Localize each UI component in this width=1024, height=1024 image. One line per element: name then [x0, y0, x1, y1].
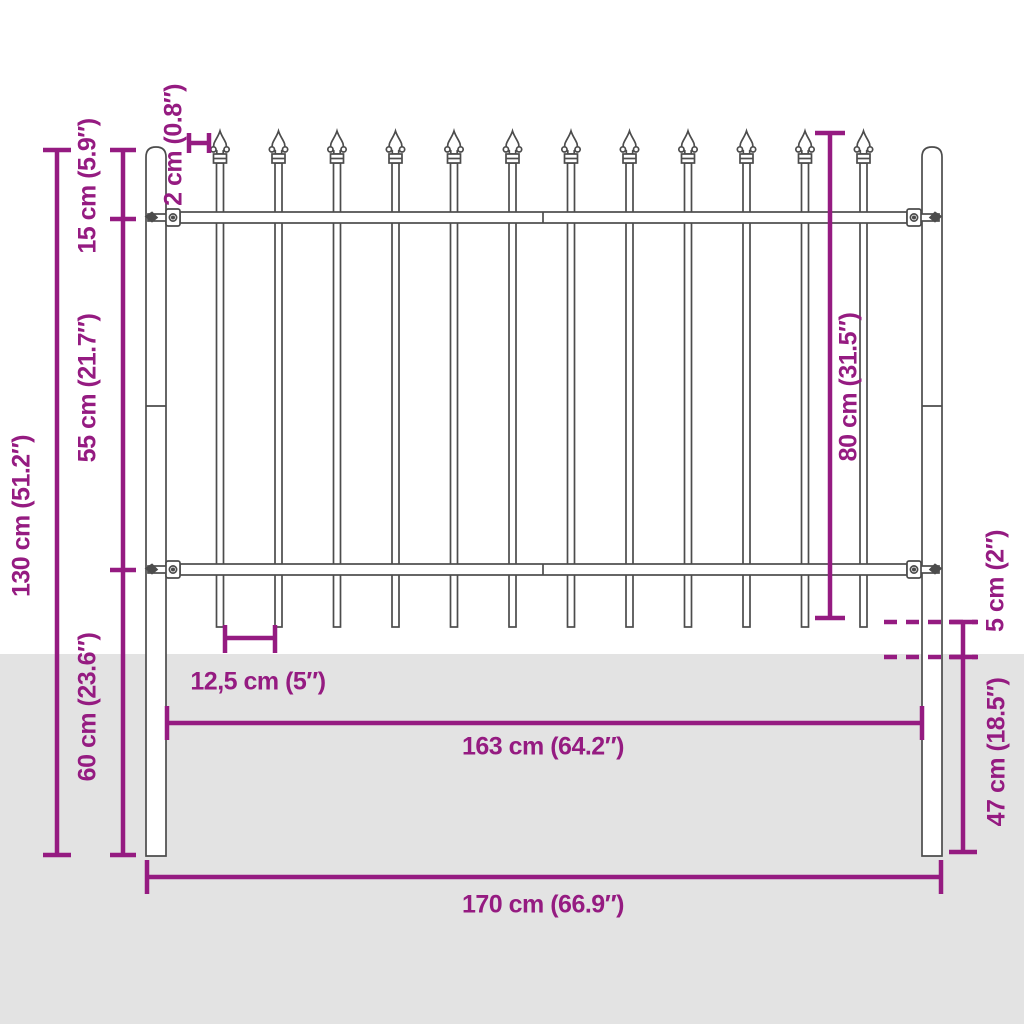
picket: [620, 131, 638, 627]
picket: [562, 131, 580, 627]
fence-diagram-svg: [0, 0, 1024, 1024]
label-rail-gap: 55 cm (21.7″): [74, 314, 103, 463]
bottom-rail: [180, 564, 907, 575]
picket: [328, 131, 346, 627]
label-top-offset: 15 cm (5.9″): [74, 118, 103, 253]
right-post: [922, 147, 942, 856]
picket: [679, 131, 697, 627]
label-total-width: 170 cm (66.9″): [462, 891, 624, 920]
label-panel-height: 80 cm (31.5″): [835, 313, 864, 462]
picket: [269, 131, 287, 627]
label-panel-width: 163 cm (64.2″): [462, 733, 624, 762]
fence-dimension-diagram: 130 cm (51.2″) 15 cm (5.9″) 55 cm (21.7″…: [0, 0, 1024, 1024]
picket: [796, 131, 814, 627]
top-rail: [180, 212, 907, 223]
left-post: [146, 147, 166, 856]
label-ground-clearance: 5 cm (2″): [982, 530, 1011, 632]
picket: [503, 131, 521, 627]
picket: [445, 131, 463, 627]
label-total-height: 130 cm (51.2″): [8, 435, 37, 597]
picket: [386, 131, 404, 627]
label-buried-depth: 47 cm (18.5″): [983, 678, 1012, 827]
label-picket-width: 2 cm (0.8″): [160, 84, 189, 206]
picket: [737, 131, 755, 627]
label-below-rail: 60 cm (23.6″): [74, 633, 103, 782]
label-picket-spacing: 12,5 cm (5″): [190, 668, 325, 697]
picket: [211, 131, 229, 627]
